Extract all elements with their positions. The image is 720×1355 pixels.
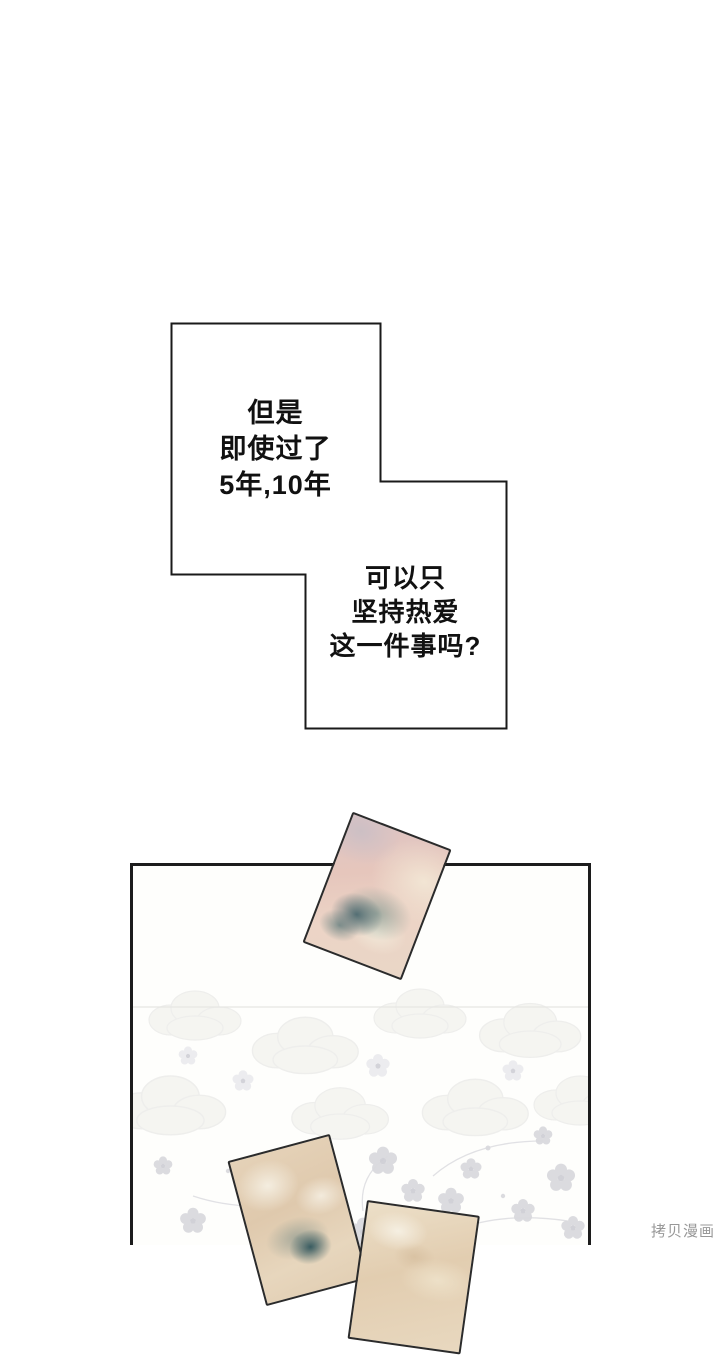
bubble-line: 坚持热爱 (305, 595, 506, 629)
bubble-line: 可以只 (305, 561, 506, 595)
photo-card-bottom-right (348, 1200, 480, 1355)
bubble-line: 即使过了 (171, 431, 380, 467)
bubble-text-block-b: 可以只 坚持热爱 这一件事吗? (305, 561, 506, 663)
watermark-text: 拷贝漫画 (651, 1220, 715, 1241)
bubble-line: 这一件事吗? (305, 629, 506, 663)
bubble-line: 但是 (171, 395, 380, 431)
bubble-text-block-a: 但是 即使过了 5年,10年 (171, 395, 380, 503)
speech-bubble-outline (172, 324, 507, 729)
bubble-line: 5年,10年 (171, 467, 380, 503)
